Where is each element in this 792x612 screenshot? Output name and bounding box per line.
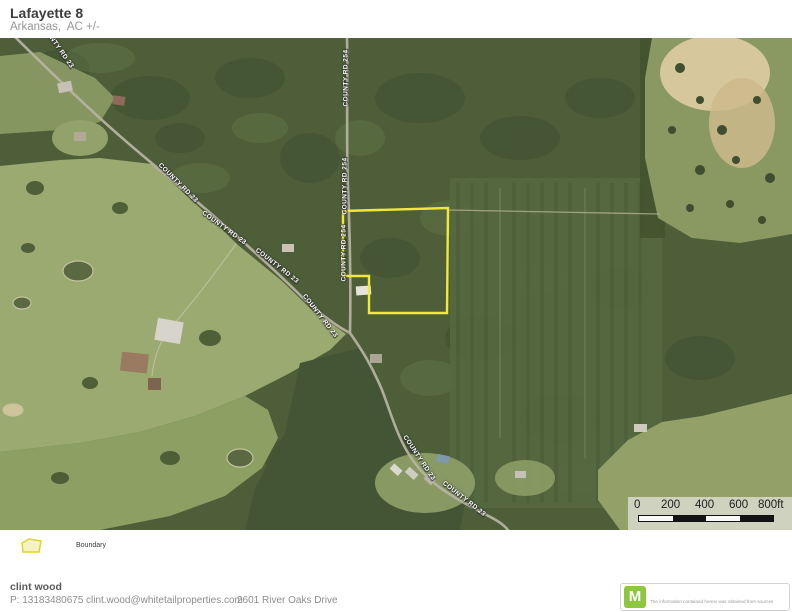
page-subtitle: Arkansas, AC +/- — [10, 21, 100, 33]
mapright-m-logo: M — [624, 586, 646, 608]
pond-dry — [3, 404, 23, 416]
bare-soil-patch-2 — [709, 78, 775, 168]
house-below-boundary — [370, 354, 382, 363]
scale-tick-0: 0 — [634, 499, 640, 511]
contact-row: P: 13183480675 clint.wood@whitetailprope… — [0, 595, 600, 609]
scale-tick-200: 200 — [661, 499, 680, 511]
boundary-polygon-icon — [20, 537, 44, 555]
house-top-left-2 — [112, 95, 125, 106]
legend: Boundary — [0, 530, 792, 564]
house-top-left-3 — [74, 132, 86, 141]
house-mid — [282, 244, 294, 252]
page-title: Lafayette 8 — [10, 5, 83, 21]
pond-3 — [227, 449, 253, 467]
aerial-map[interactable]: COUNTY RD 23 COUNTY RD 23 COUNTY RD 23 C… — [0, 38, 792, 530]
map-export-page: Lafayette 8 Arkansas, AC +/- — [0, 0, 792, 612]
scale-bar: 0 200 400 600 800ft — [628, 497, 792, 530]
header: Lafayette 8 Arkansas, AC +/- — [0, 0, 792, 38]
house-right — [634, 424, 647, 432]
scale-segment — [740, 516, 774, 521]
scale-segment — [639, 516, 673, 521]
road-label-county-rd-254: COUNTY RD 254 — [342, 157, 349, 214]
agent-name: clint wood — [10, 581, 62, 593]
agent-phone: P: 13183480675 — [10, 595, 83, 606]
agent-email: clint.wood@whitetailproperties.com — [86, 595, 243, 606]
pond-2 — [13, 297, 31, 309]
road-label-county-rd-254: COUNTY RD 254 — [343, 49, 350, 106]
scale-tick-400: 400 — [695, 499, 714, 511]
rust-barn — [120, 352, 149, 374]
disclaimer-text: The information contained herein was obt… — [650, 586, 788, 612]
legend-boundary-label: Boundary — [76, 542, 106, 549]
scale-segment — [673, 516, 707, 521]
scale-tick-600: 600 — [729, 499, 748, 511]
house-bottom-right — [515, 471, 526, 478]
scale-tick-800ft: 800ft — [758, 499, 784, 511]
disclaimer-line: The information contained herein was obt… — [650, 599, 788, 606]
white-barn — [154, 318, 183, 344]
map-canvas — [0, 38, 792, 530]
disclaimer-box: M The information contained herein was o… — [620, 583, 790, 611]
pond-1 — [63, 261, 93, 281]
road-label-county-rd-254: COUNTY RD 254 — [341, 224, 348, 281]
shed — [148, 378, 161, 390]
scale-bar-segments — [638, 515, 774, 522]
scale-segment — [706, 516, 740, 521]
agent-address: 2601 River Oaks Drive — [237, 595, 338, 606]
